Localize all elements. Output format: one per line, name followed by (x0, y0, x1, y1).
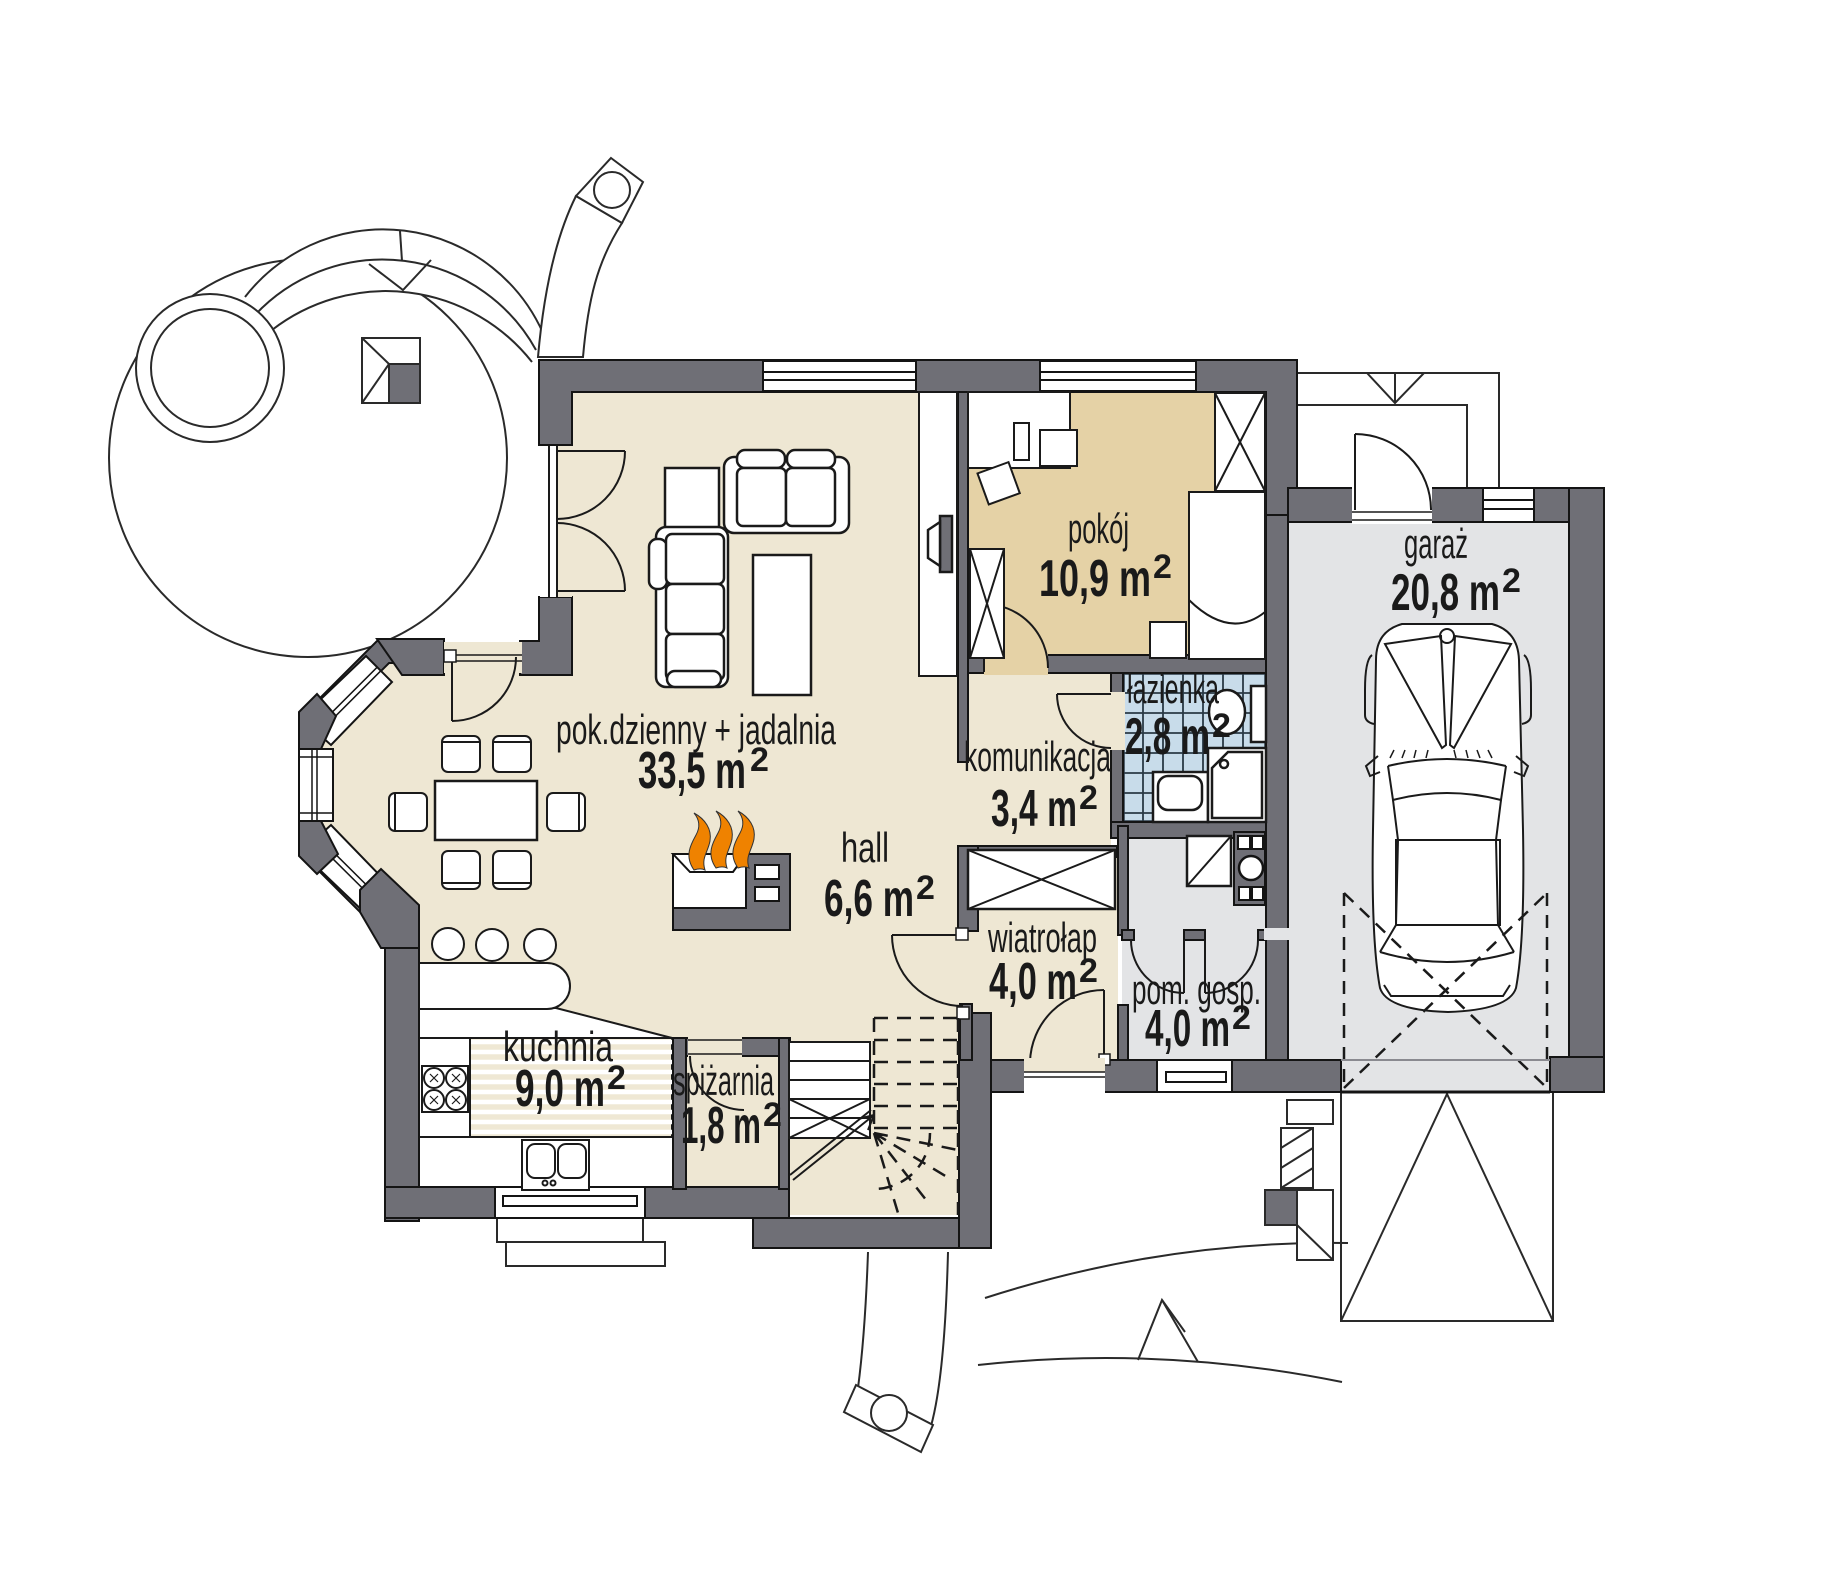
svg-text:pokój: pokój (1068, 505, 1129, 552)
svg-text:2: 2 (1079, 779, 1098, 817)
svg-text:20,8 m: 20,8 m (1391, 564, 1500, 622)
svg-text:2: 2 (916, 869, 935, 907)
svg-text:4,0 m: 4,0 m (1145, 1000, 1230, 1058)
svg-text:komunikacja: komunikacja (964, 733, 1111, 780)
svg-text:1,8 m: 1,8 m (681, 1097, 761, 1155)
svg-text:hall: hall (841, 824, 889, 871)
svg-text:2: 2 (1212, 707, 1231, 745)
svg-text:33,5 m: 33,5 m (638, 742, 746, 800)
svg-text:łazienka: łazienka (1127, 665, 1219, 712)
svg-text:3,4 m: 3,4 m (991, 780, 1077, 838)
svg-text:garaż: garaż (1404, 520, 1468, 567)
svg-text:2: 2 (607, 1059, 626, 1097)
svg-text:2: 2 (1079, 952, 1098, 990)
svg-text:2: 2 (1232, 999, 1251, 1037)
svg-text:4,0 m: 4,0 m (989, 953, 1077, 1011)
svg-text:9,0 m: 9,0 m (515, 1060, 605, 1118)
svg-text:2: 2 (1153, 548, 1172, 586)
svg-text:2,8 m: 2,8 m (1125, 708, 1210, 766)
svg-text:2: 2 (750, 741, 769, 779)
svg-text:2: 2 (1502, 562, 1521, 600)
svg-text:10,9 m: 10,9 m (1039, 550, 1151, 608)
svg-text:2: 2 (763, 1096, 782, 1134)
svg-text:6,6 m: 6,6 m (824, 870, 914, 928)
